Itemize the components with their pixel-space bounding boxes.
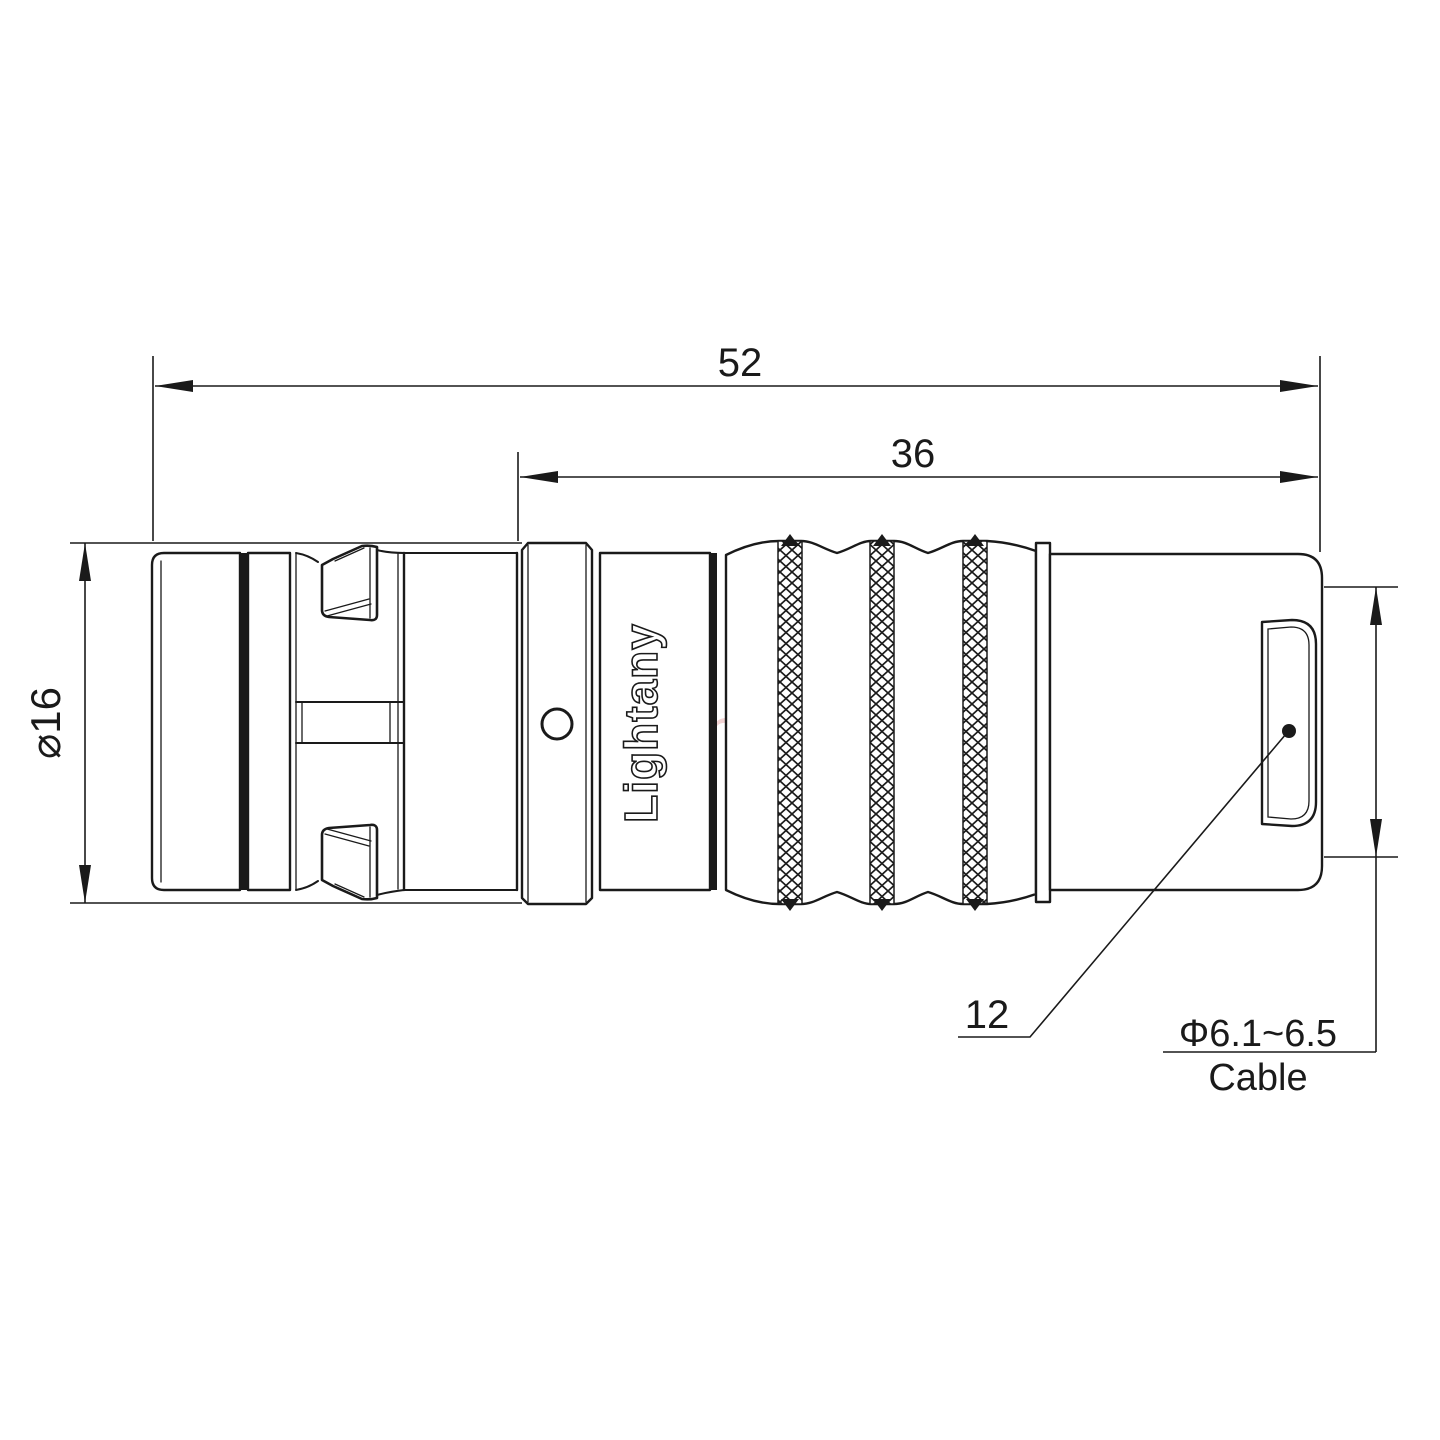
shell-diameter-value: ⌀16 <box>22 687 69 759</box>
barrel-edge-band <box>710 553 717 890</box>
overall-length-value: 52 <box>718 341 763 385</box>
front-sleeve-section <box>152 553 248 890</box>
knurled-ring-3 <box>963 534 987 911</box>
knurled-grip-section <box>726 534 1050 911</box>
technical-drawing-page: Lightany Lightany <box>0 0 1440 1440</box>
connector-drawing: Lightany Lightany <box>0 0 1440 1440</box>
branded-barrel-section: Lightany <box>600 553 717 890</box>
rear-cap-section <box>1050 554 1322 890</box>
rear-ring <box>1036 543 1050 902</box>
knurled-ring-2 <box>870 534 894 911</box>
boss-diameter-value: 12 <box>965 993 1010 1037</box>
cable-bushing-outer <box>1262 620 1316 826</box>
body-length-value: 36 <box>891 432 936 476</box>
cable-range-value: Φ6.1~6.5 <box>1179 1013 1337 1055</box>
coupling-nut-section <box>522 543 592 904</box>
body-marking-text: Lightany <box>615 623 667 823</box>
knurled-ring-1 <box>778 534 802 911</box>
cable-word-label: Cable <box>1208 1057 1307 1099</box>
